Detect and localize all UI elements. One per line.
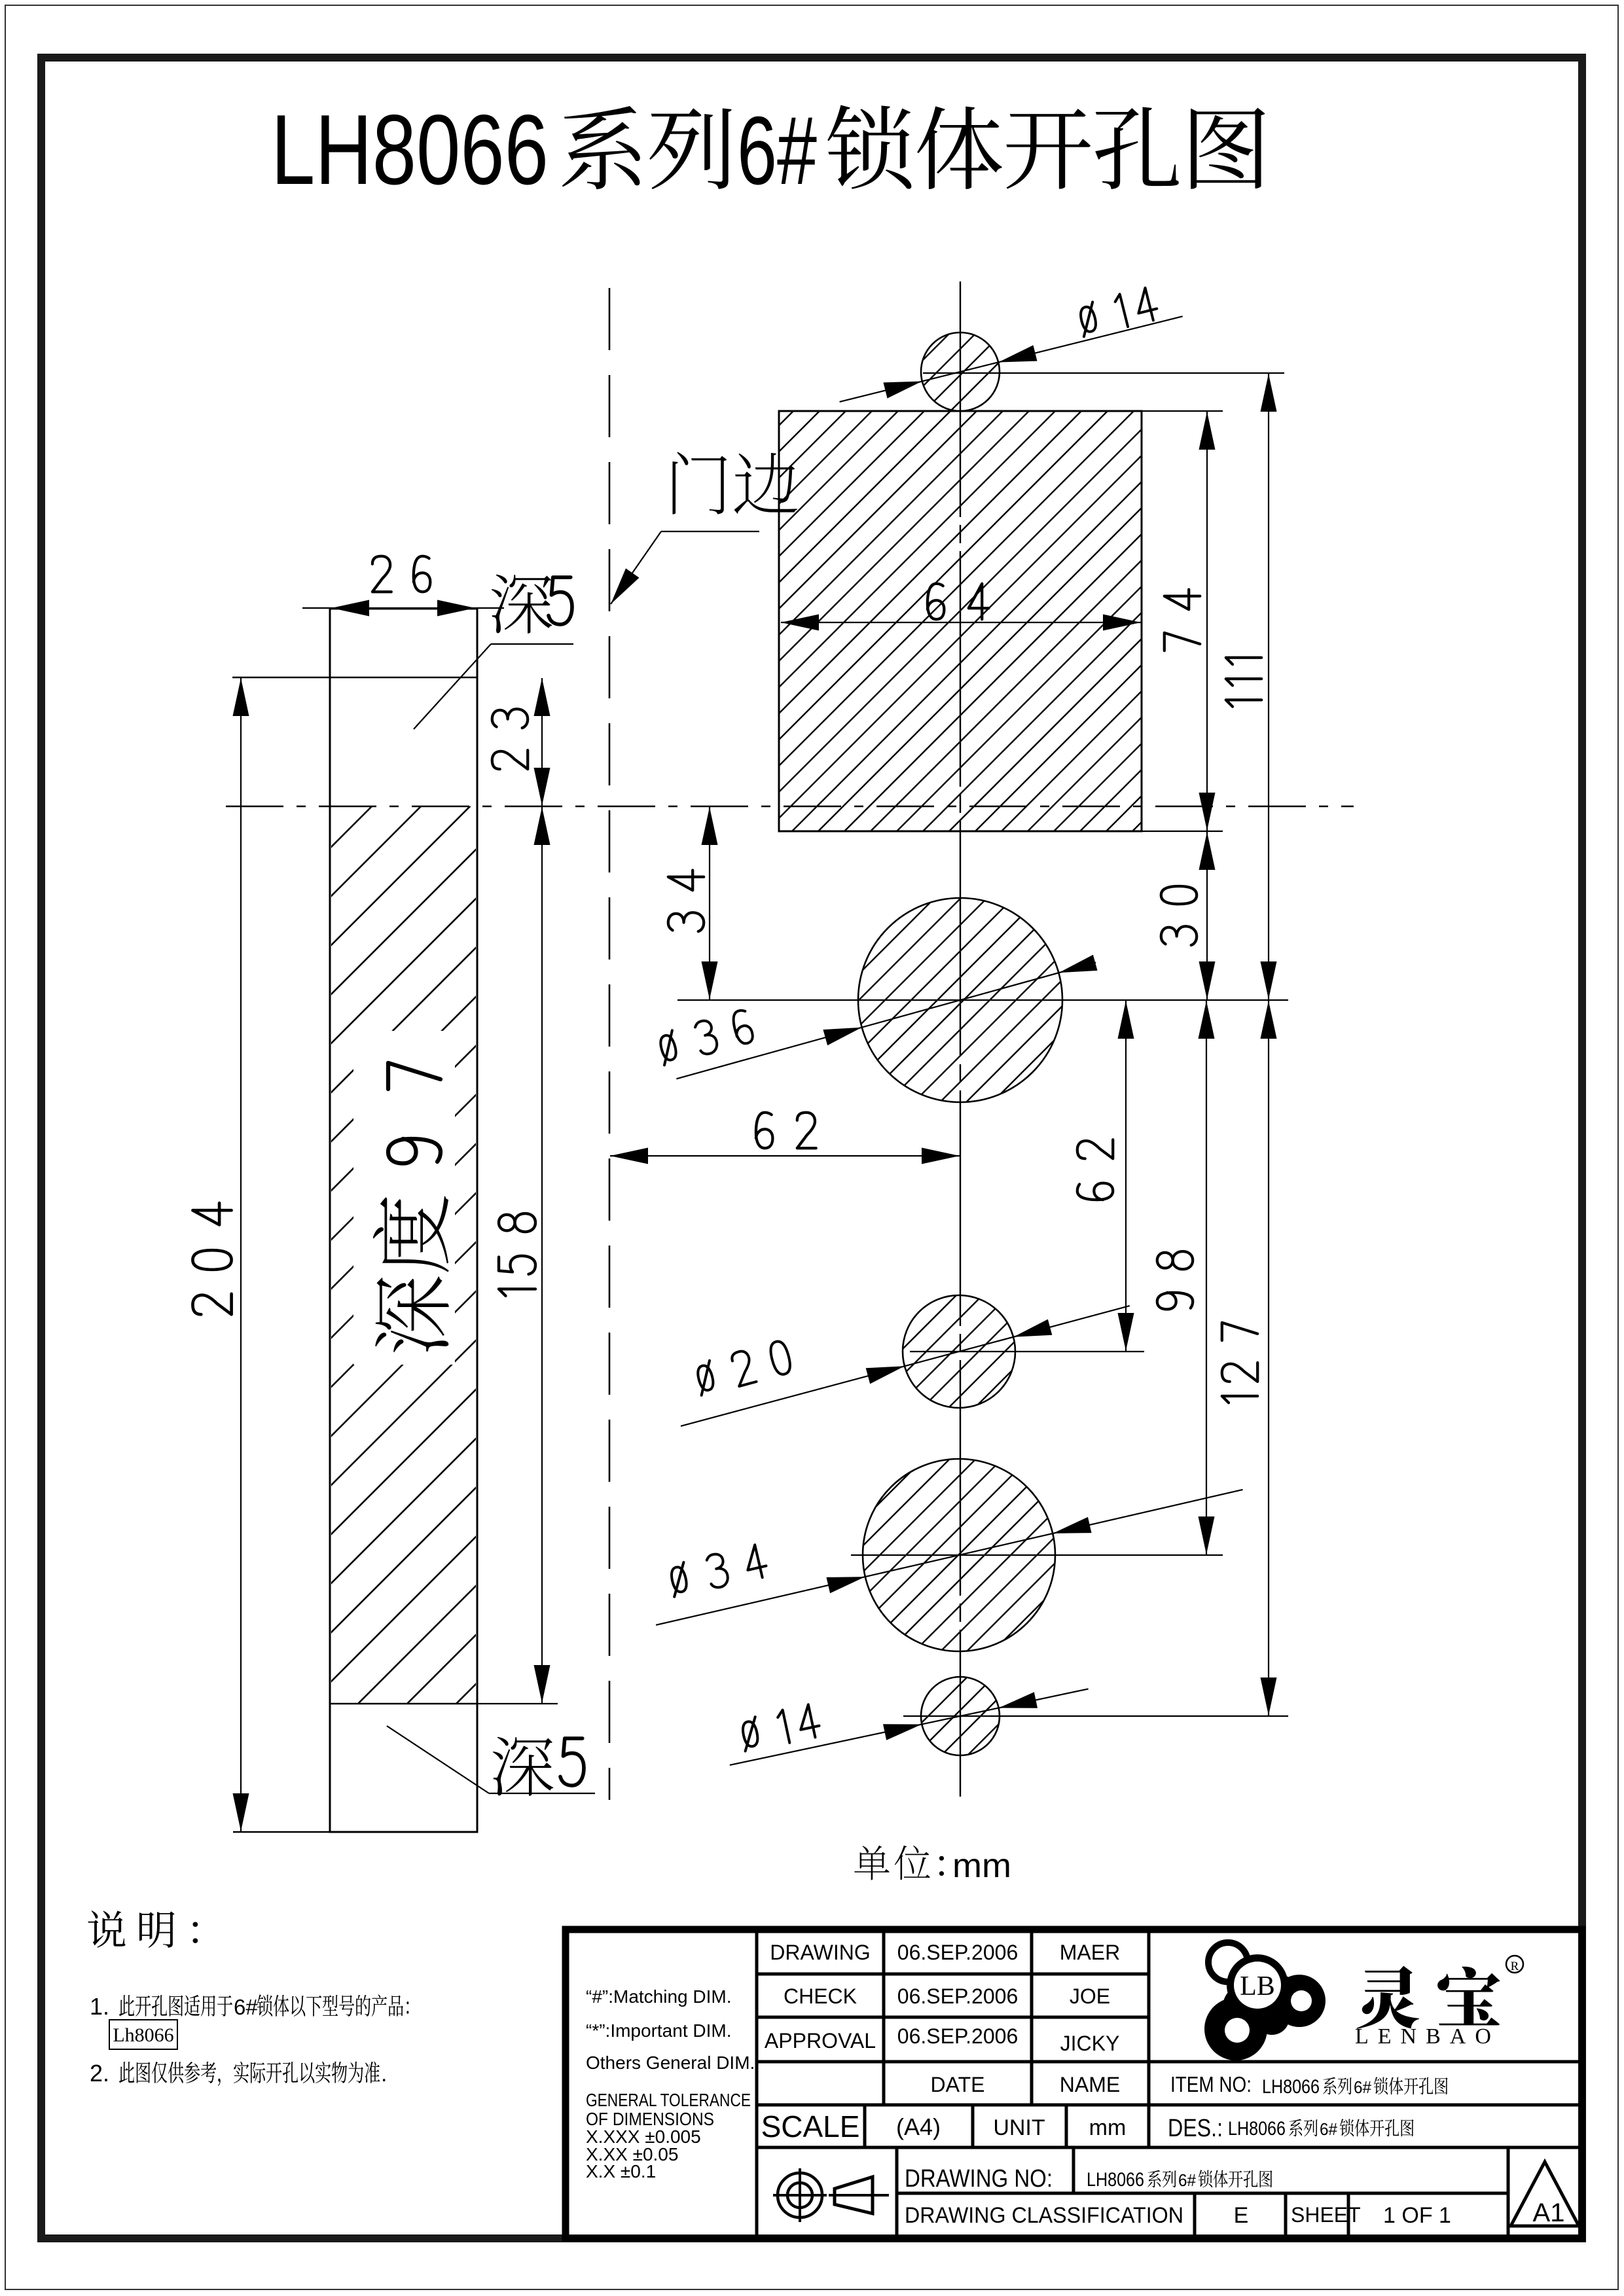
svg-text:6#: 6# xyxy=(1178,2170,1197,2190)
svg-text:6#: 6# xyxy=(1354,2077,1372,2097)
svg-text:.: . xyxy=(381,2062,387,2087)
svg-text:MAER: MAER xyxy=(1060,1941,1120,1964)
svg-text:UNIT: UNIT xyxy=(993,2115,1045,2140)
svg-text:6#: 6# xyxy=(737,97,817,205)
svg-text:1 OF 1: 1 OF 1 xyxy=(1383,2203,1451,2228)
svg-text:DRAWING: DRAWING xyxy=(770,1941,870,1964)
svg-text:JICKY: JICKY xyxy=(1060,2032,1120,2055)
svg-text:06.SEP.2006: 06.SEP.2006 xyxy=(897,1984,1018,2008)
svg-text:(A4): (A4) xyxy=(896,2113,941,2140)
svg-text:06.SEP.2006: 06.SEP.2006 xyxy=(897,2024,1018,2048)
svg-text:GENERAL TOLERANCE: GENERAL TOLERANCE xyxy=(586,2090,751,2110)
svg-text:mm: mm xyxy=(952,1847,1011,1885)
svg-text:A1: A1 xyxy=(1533,2198,1565,2227)
svg-text:CHECK: CHECK xyxy=(784,1984,857,2008)
svg-text:LH8066: LH8066 xyxy=(1228,2118,1286,2140)
svg-text:R: R xyxy=(1511,1960,1519,1973)
svg-text:6#: 6# xyxy=(234,1995,258,2019)
svg-text:6#: 6# xyxy=(1320,2119,1338,2139)
svg-text:1.: 1. xyxy=(90,1993,109,2020)
svg-text:LH8066: LH8066 xyxy=(271,94,549,206)
svg-text:ITEM NO:: ITEM NO: xyxy=(1170,2072,1252,2096)
svg-text:LH8066: LH8066 xyxy=(1262,2076,1320,2098)
svg-text:mm: mm xyxy=(1089,2115,1127,2140)
svg-text:2.: 2. xyxy=(90,2060,109,2087)
svg-text:SHEET: SHEET xyxy=(1291,2203,1361,2227)
svg-text:NAME: NAME xyxy=(1060,2073,1120,2096)
svg-text:06.SEP.2006: 06.SEP.2006 xyxy=(897,1941,1018,1964)
svg-text:Lh8066: Lh8066 xyxy=(113,2024,173,2046)
svg-text:APPROVAL: APPROVAL xyxy=(765,2029,876,2053)
svg-text:LB: LB xyxy=(1240,1971,1275,2001)
svg-text:DRAWING CLASSIFICATION: DRAWING CLASSIFICATION xyxy=(905,2203,1183,2228)
svg-text:“*”:Important DIM.: “*”:Important DIM. xyxy=(586,2020,731,2041)
svg-text:SCALE: SCALE xyxy=(761,2109,860,2144)
svg-text:X.X ±0.1: X.X ±0.1 xyxy=(586,2161,656,2181)
svg-text:“#”:Matching DIM.: “#”:Matching DIM. xyxy=(586,1986,732,2007)
svg-text:JOE: JOE xyxy=(1070,1984,1110,2008)
svg-text:LENBAO: LENBAO xyxy=(1355,2024,1500,2049)
svg-text:DRAWING NO:: DRAWING NO: xyxy=(905,2165,1053,2193)
svg-text:E: E xyxy=(1234,2203,1249,2228)
svg-text:LH8066: LH8066 xyxy=(1087,2169,1144,2191)
svg-text:DATE: DATE xyxy=(931,2073,985,2096)
svg-text:Others General DIM.: Others General DIM. xyxy=(586,2053,755,2073)
svg-text:DES.:: DES.: xyxy=(1168,2115,1223,2142)
